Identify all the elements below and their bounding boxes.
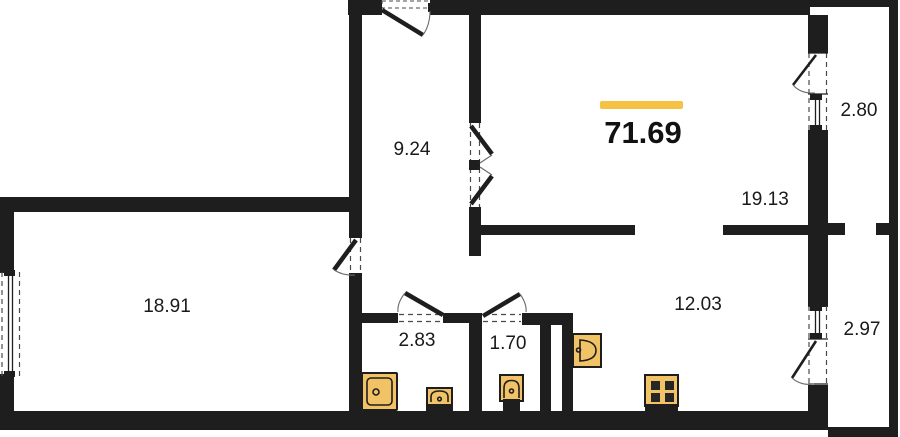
room-area-balcony-upper: 2.80 <box>841 100 878 121</box>
bathroom-sink-icon <box>427 388 452 412</box>
living-room-door <box>334 238 361 275</box>
wc-door <box>483 294 526 322</box>
door-swing-arc <box>398 293 405 312</box>
floor-plan: 71.69 9.24 18.91 19.13 12.03 2.83 1.70 2… <box>0 0 900 437</box>
door-swing-arc <box>793 85 815 93</box>
double-door <box>469 123 492 207</box>
balcony-door-leaf <box>792 341 816 378</box>
living-room-window <box>2 270 20 377</box>
toilet-icon <box>500 375 523 412</box>
balcony-door-leaf <box>793 55 816 85</box>
wall-segment <box>0 197 362 212</box>
wall-segment <box>0 197 14 273</box>
door-leaf <box>405 293 443 315</box>
door-leaf <box>471 126 492 154</box>
door-swing-arc <box>480 155 492 163</box>
stove-burner <box>651 393 660 402</box>
bathtub-icon <box>362 373 397 410</box>
room-area-kitchen-living: 12.03 <box>674 294 722 315</box>
kitchen-sink-icon <box>573 334 601 367</box>
entrance-door <box>377 1 433 35</box>
stove-base <box>645 404 678 412</box>
window-jamb <box>810 94 822 100</box>
entrance-threshold <box>382 1 429 8</box>
wall-segment <box>828 427 898 437</box>
wall-segment <box>469 15 481 123</box>
room-area-hall: 9.24 <box>394 139 431 160</box>
stove-burner <box>665 381 674 390</box>
door-leaf <box>471 176 492 204</box>
window-jamb <box>810 333 822 339</box>
stove-icon <box>645 375 678 412</box>
door-jamb <box>428 3 433 12</box>
room-area-bathroom: 2.83 <box>399 330 436 351</box>
lower-balcony-door-window <box>792 305 828 385</box>
window-jamb <box>810 305 822 311</box>
toilet-base <box>503 399 520 412</box>
door-jamb <box>377 3 382 12</box>
wall-segment <box>469 207 481 256</box>
sink-base <box>427 404 452 412</box>
wall-segment <box>828 223 845 235</box>
window-jamb <box>4 371 15 377</box>
wall-segment <box>889 0 898 430</box>
upper-balcony-door-window <box>793 53 828 131</box>
window-jamb <box>810 125 822 131</box>
total-area-label: 71.69 <box>604 115 682 150</box>
wall-segment <box>0 411 828 430</box>
wall-segment <box>349 313 398 323</box>
door-swing-arc <box>480 167 492 175</box>
room-area-living-room: 18.91 <box>143 296 191 317</box>
window-jamb <box>4 270 15 276</box>
stove-burner <box>665 393 674 402</box>
door-leaf <box>483 294 520 316</box>
room-area-bedroom: 19.13 <box>741 189 789 210</box>
door-leaf <box>382 10 423 35</box>
wall-segment <box>430 0 810 15</box>
wall-segment <box>808 15 828 53</box>
wall-segment <box>810 0 890 7</box>
wall-segment <box>540 322 551 412</box>
door-pivot <box>469 160 480 170</box>
wall-segment <box>481 225 635 235</box>
wall-segment <box>469 313 482 412</box>
wall-segment <box>562 322 573 412</box>
room-area-balcony-lower: 2.97 <box>844 319 881 340</box>
wall-segment <box>349 273 362 412</box>
door-swing-arc <box>520 294 526 312</box>
walls <box>0 0 898 437</box>
door-leaf <box>334 240 356 270</box>
wall-segment <box>723 225 808 235</box>
stove-burner <box>651 381 660 390</box>
bathroom-door <box>398 293 443 322</box>
wall-segment <box>876 223 889 235</box>
door-swing-arc <box>423 11 430 35</box>
floor-plan-svg: 71.69 9.24 18.91 19.13 12.03 2.83 1.70 2… <box>0 0 900 437</box>
wall-segment <box>808 385 828 415</box>
total-area-bar <box>600 101 683 109</box>
wall-segment <box>808 130 828 307</box>
room-area-wc: 1.70 <box>490 333 527 354</box>
